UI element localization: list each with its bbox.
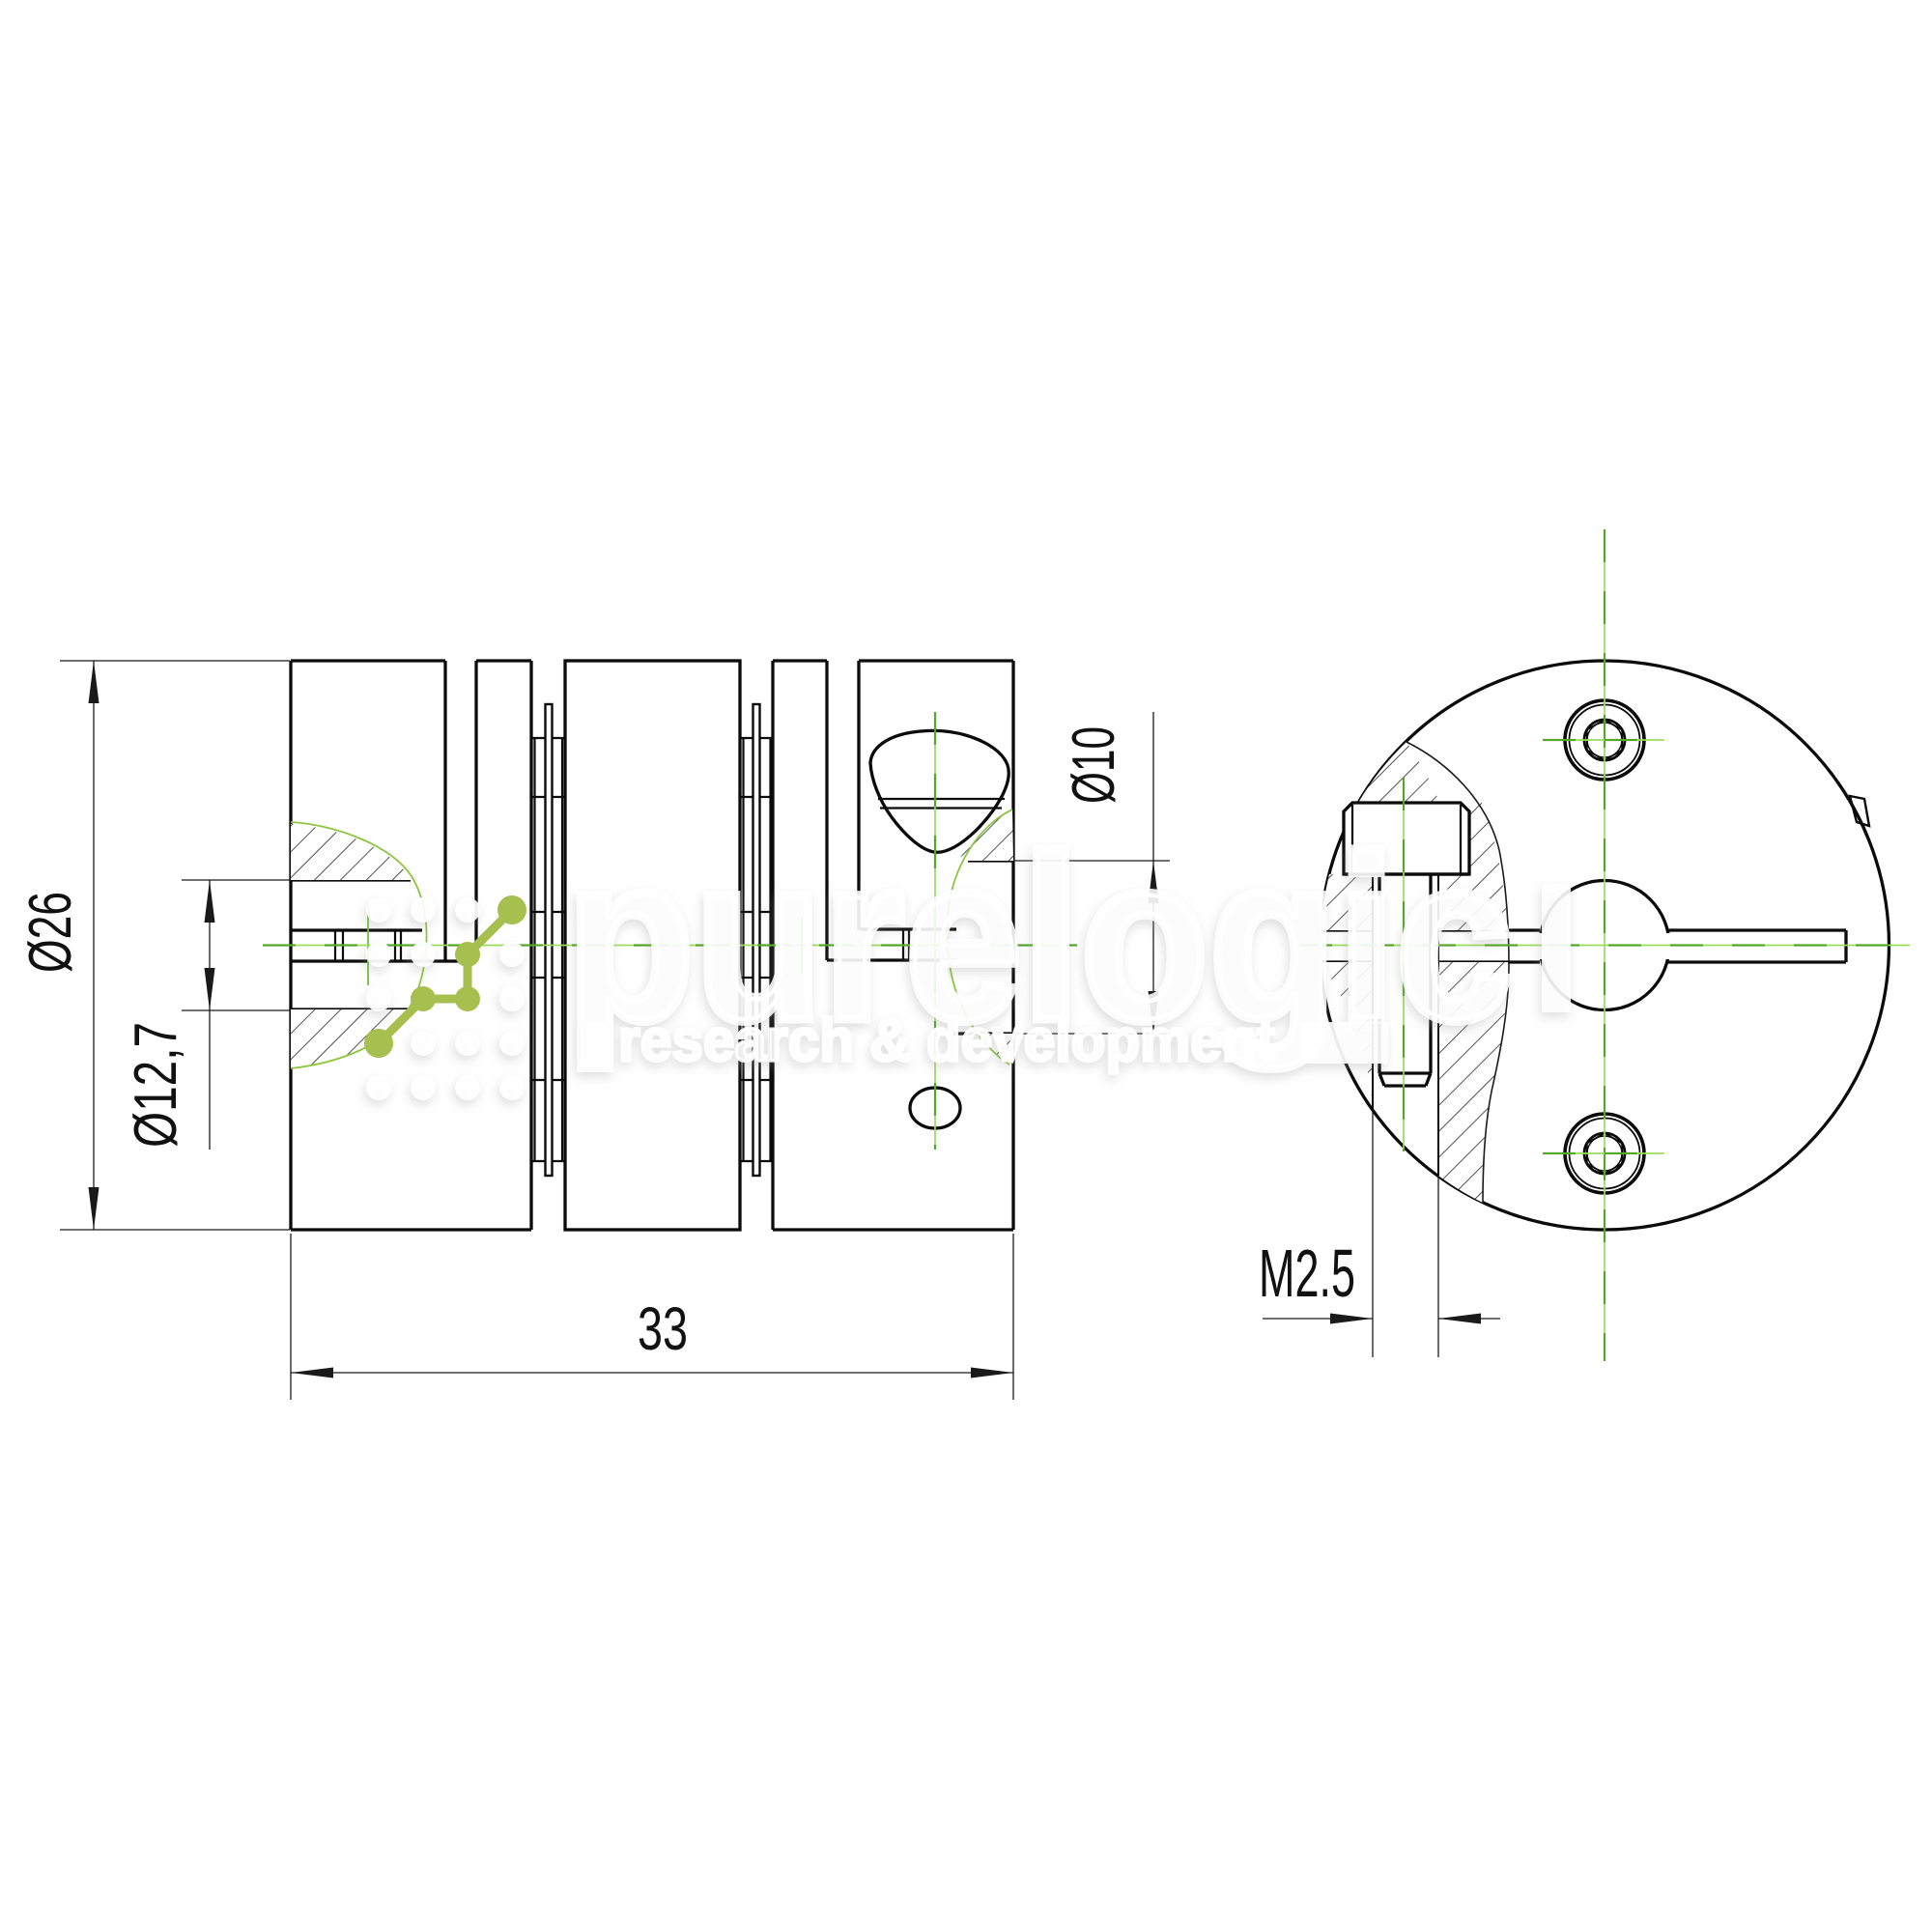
svg-text:M2.5: M2.5	[1259, 1236, 1355, 1311]
svg-text:33: 33	[638, 1295, 688, 1363]
svg-text:Ø12,7: Ø12,7	[123, 1022, 189, 1148]
svg-text:Ø26: Ø26	[17, 892, 84, 973]
svg-text:research & development: research & development	[618, 1008, 1275, 1074]
svg-text:Ø10: Ø10	[1061, 726, 1127, 804]
